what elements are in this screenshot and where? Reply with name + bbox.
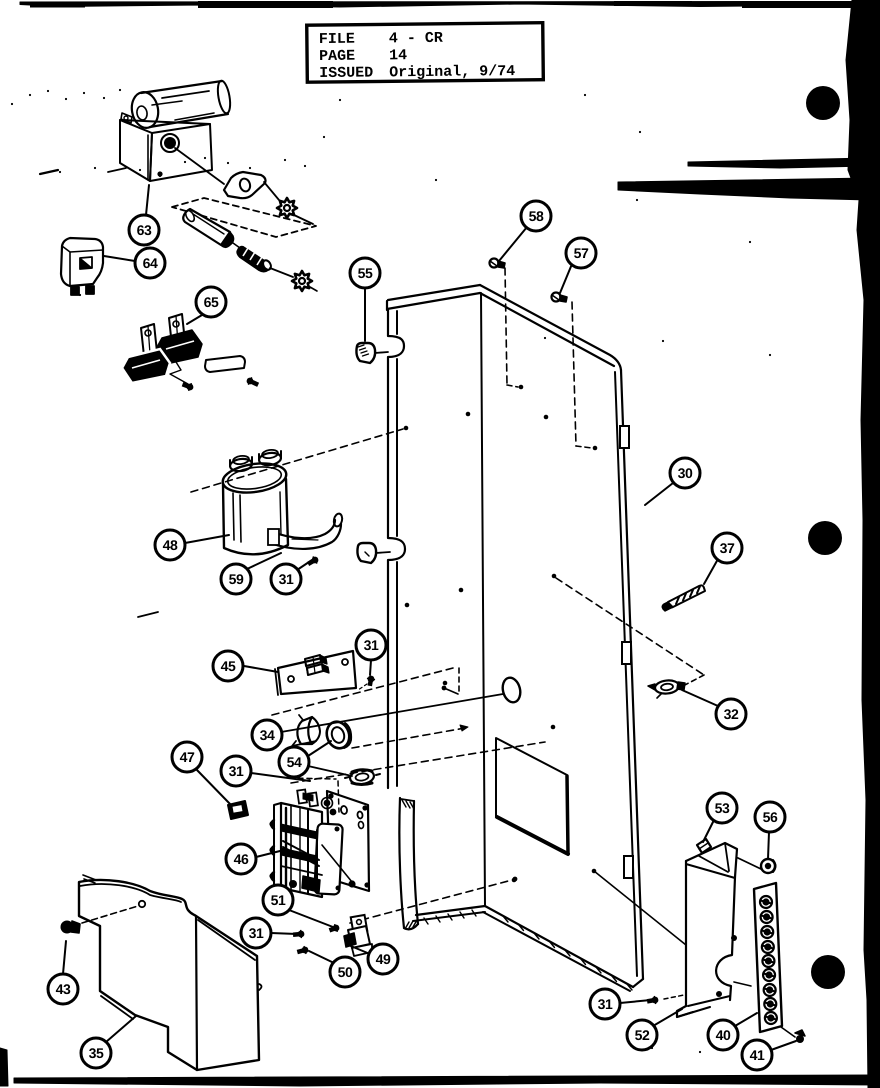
svg-text:31: 31 (279, 571, 294, 587)
svg-text:63: 63 (137, 222, 152, 238)
svg-text:49: 49 (376, 951, 391, 967)
svg-text:41: 41 (750, 1047, 765, 1063)
svg-text:65: 65 (204, 294, 219, 310)
svg-text:31: 31 (229, 763, 244, 779)
svg-text:51: 51 (271, 892, 286, 908)
svg-text:31: 31 (598, 996, 613, 1012)
svg-text:47: 47 (180, 749, 195, 765)
svg-text:48: 48 (163, 537, 178, 553)
svg-text:Original, 9/74: Original, 9/74 (389, 63, 515, 81)
svg-text:35: 35 (89, 1045, 104, 1061)
svg-text:53: 53 (715, 800, 730, 816)
svg-text:31: 31 (364, 637, 379, 653)
svg-text:32: 32 (724, 706, 739, 722)
svg-text:54: 54 (287, 754, 302, 770)
svg-text:14: 14 (389, 47, 407, 64)
svg-text:55: 55 (358, 265, 373, 281)
svg-text:30: 30 (678, 465, 693, 481)
svg-text:FILE: FILE (319, 31, 355, 48)
svg-text:57: 57 (574, 245, 589, 261)
svg-text:34: 34 (260, 727, 275, 743)
svg-text:37: 37 (720, 540, 735, 556)
svg-text:31: 31 (249, 925, 264, 941)
svg-text:50: 50 (338, 964, 353, 980)
svg-text:46: 46 (234, 851, 249, 867)
svg-text:43: 43 (56, 981, 71, 997)
svg-text:4 - CR: 4 - CR (389, 30, 443, 48)
svg-text:56: 56 (763, 809, 778, 825)
svg-text:64: 64 (143, 255, 158, 271)
svg-text:45: 45 (221, 658, 236, 674)
svg-text:PAGE: PAGE (319, 48, 355, 65)
svg-text:52: 52 (635, 1027, 650, 1043)
svg-text:40: 40 (716, 1027, 731, 1043)
svg-text:ISSUED: ISSUED (319, 64, 373, 82)
svg-text:59: 59 (229, 571, 244, 587)
svg-text:58: 58 (529, 208, 544, 224)
